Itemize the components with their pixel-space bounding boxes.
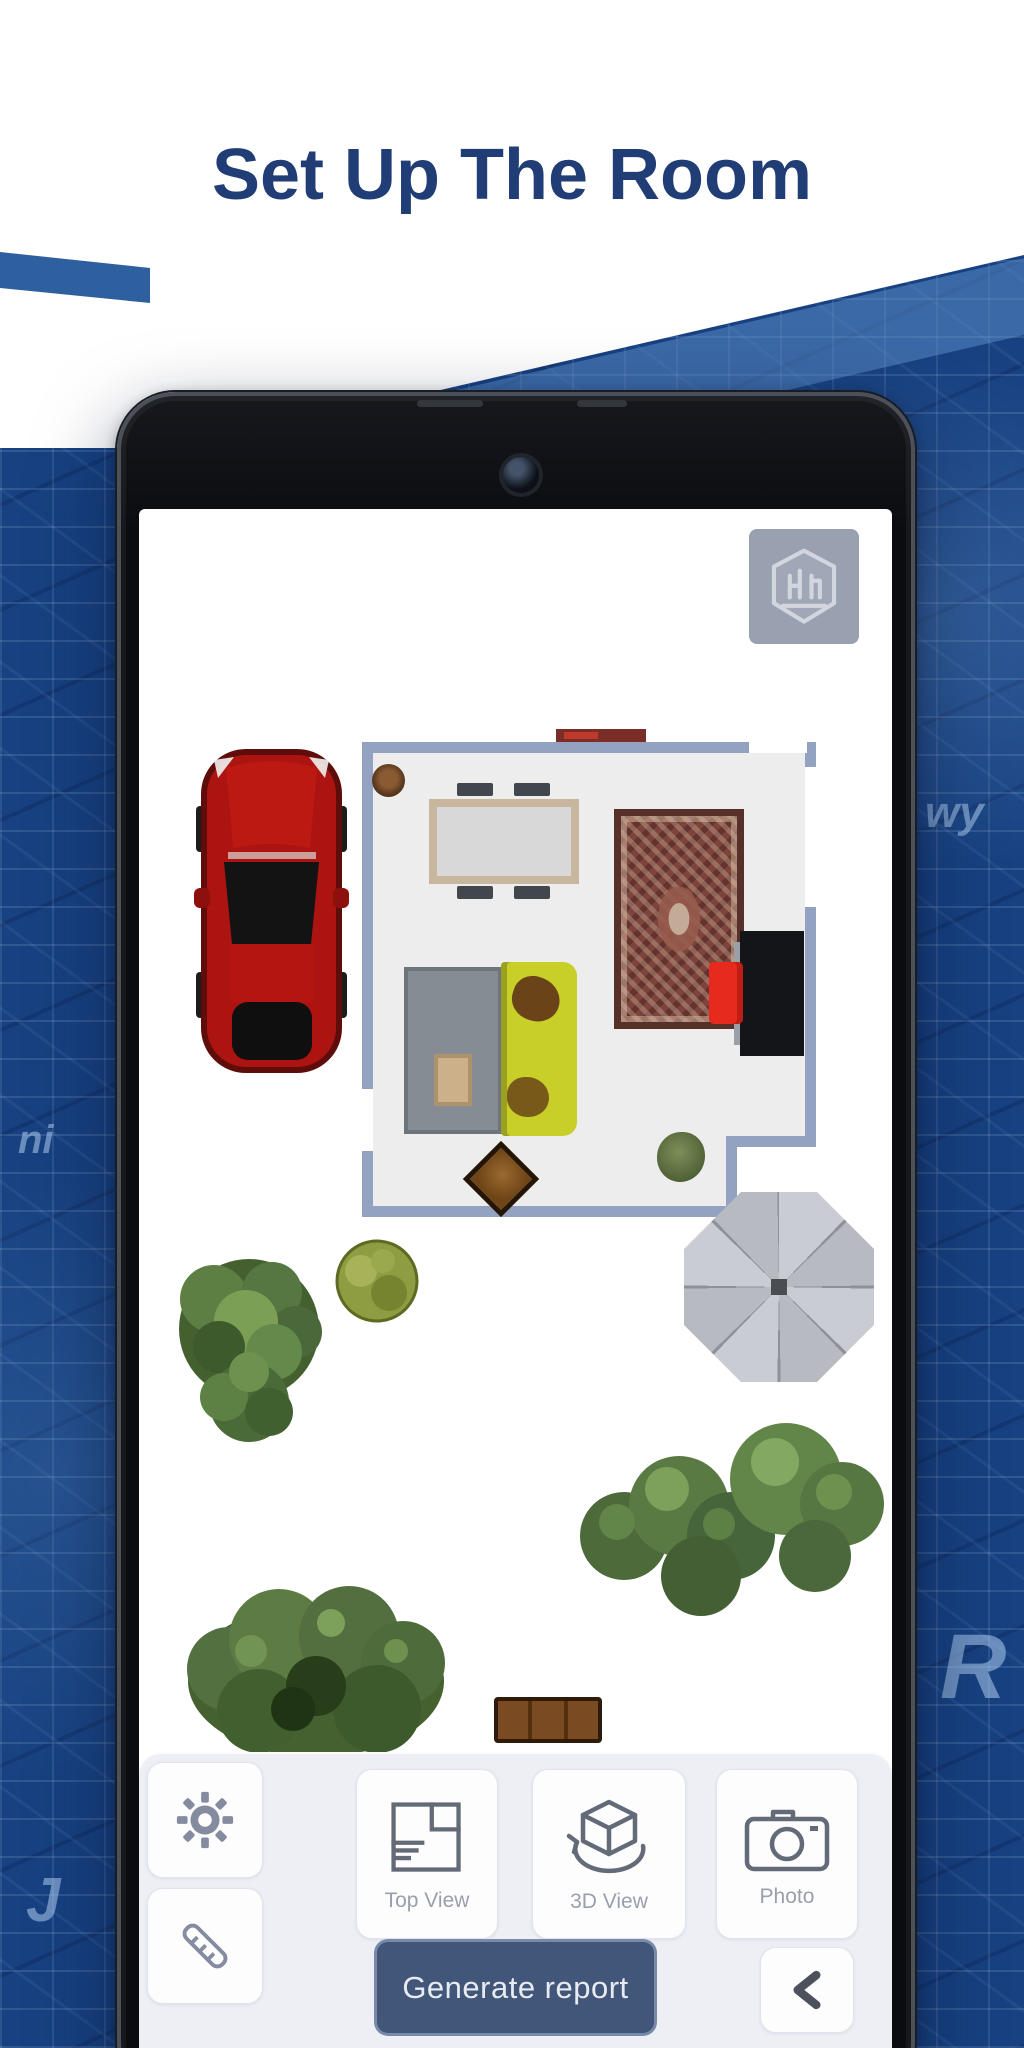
tv-console-item[interactable] (740, 931, 804, 1056)
three-d-view-label: 3D View (570, 1890, 648, 1914)
page-title: Set Up The Room (0, 134, 1024, 216)
top-view-label: Top View (385, 1889, 470, 1913)
wall-notch-horizontal (726, 1136, 816, 1147)
dining-table-item[interactable] (429, 799, 579, 884)
floor-plan-icon (384, 1795, 470, 1881)
measure-button[interactable] (147, 1888, 263, 2004)
gear-icon (174, 1789, 236, 1851)
ruler-icon (174, 1915, 236, 1977)
car-item[interactable] (194, 744, 349, 1079)
top-view-button[interactable]: Top View (356, 1769, 498, 1939)
antenna-notch (577, 400, 627, 407)
tree-item[interactable] (327, 1235, 427, 1335)
chair-item[interactable] (457, 783, 493, 796)
blueprint-scribble: R (940, 1615, 1006, 1720)
patio-umbrella-item[interactable] (684, 1192, 874, 1382)
phone-mockup: Top View 3D View (117, 392, 915, 2048)
photo-button[interactable]: Photo (716, 1769, 858, 1939)
three-d-view-button[interactable]: 3D View (532, 1769, 686, 1939)
window-left (362, 1089, 373, 1151)
bench-item[interactable] (494, 1697, 602, 1743)
phone-screen: Top View 3D View (139, 509, 892, 2048)
tree-group-item[interactable] (579, 1384, 891, 1624)
generate-report-label: Generate report (402, 1970, 628, 2006)
share-button[interactable] (760, 1947, 854, 2033)
blueprint-scribble: wy (925, 788, 984, 838)
coffee-table-item[interactable] (434, 1054, 472, 1106)
gray-rug-item[interactable] (404, 967, 502, 1134)
wall-top (362, 742, 816, 753)
settings-button[interactable] (147, 1762, 263, 1878)
bottom-toolbar: Top View 3D View (139, 1752, 892, 2048)
blueprint-scribble: ni (18, 1118, 54, 1163)
chair-item[interactable] (457, 886, 493, 899)
sofa-cushion (507, 1077, 549, 1117)
marketing-screenshot: ni wy R J Set Up The Room (0, 0, 1024, 2048)
app-logo-icon (749, 529, 859, 644)
chair-item[interactable] (514, 783, 550, 796)
wall-bottom (362, 1206, 737, 1217)
window-top (749, 742, 807, 753)
car-top-view-graphic (194, 744, 349, 1079)
potted-plant-item[interactable] (372, 764, 405, 797)
generate-report-button[interactable]: Generate report (374, 1939, 657, 2036)
entry-doormat[interactable] (556, 729, 646, 742)
3d-view-icon (561, 1794, 657, 1882)
room-floor-plan[interactable] (362, 742, 816, 1217)
tree-item[interactable] (154, 1237, 339, 1462)
chair-item[interactable] (514, 886, 550, 899)
share-chevron-icon (779, 1962, 835, 2018)
window-right (805, 767, 816, 907)
photo-label: Photo (760, 1885, 815, 1909)
blueprint-scribble: J (26, 1865, 60, 1936)
red-armchair-item[interactable] (709, 962, 743, 1024)
antenna-notch (417, 400, 483, 407)
camera-icon (739, 1799, 835, 1877)
camera-punch-hole-icon (499, 453, 543, 497)
bush-item[interactable] (181, 1581, 451, 1761)
